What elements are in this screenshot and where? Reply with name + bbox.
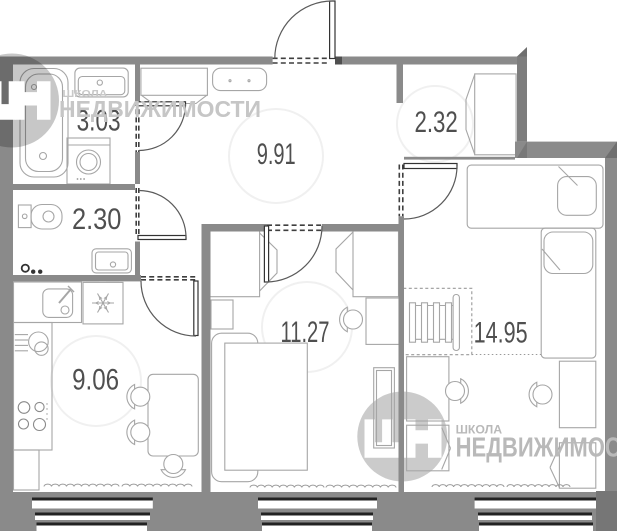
svg-text:9.91: 9.91: [257, 138, 296, 171]
svg-text:НЕДВИЖИМОСТИ: НЕДВИЖИМОСТИ: [456, 432, 617, 463]
svg-text:9.06: 9.06: [72, 363, 119, 396]
svg-text:2.32: 2.32: [414, 106, 457, 139]
svg-text:14.95: 14.95: [474, 317, 528, 350]
svg-text:11.27: 11.27: [281, 316, 330, 349]
svg-text:НЕДВИЖИМОСТИ: НЕДВИЖИМОСТИ: [59, 96, 261, 122]
svg-text:2.30: 2.30: [72, 203, 122, 236]
